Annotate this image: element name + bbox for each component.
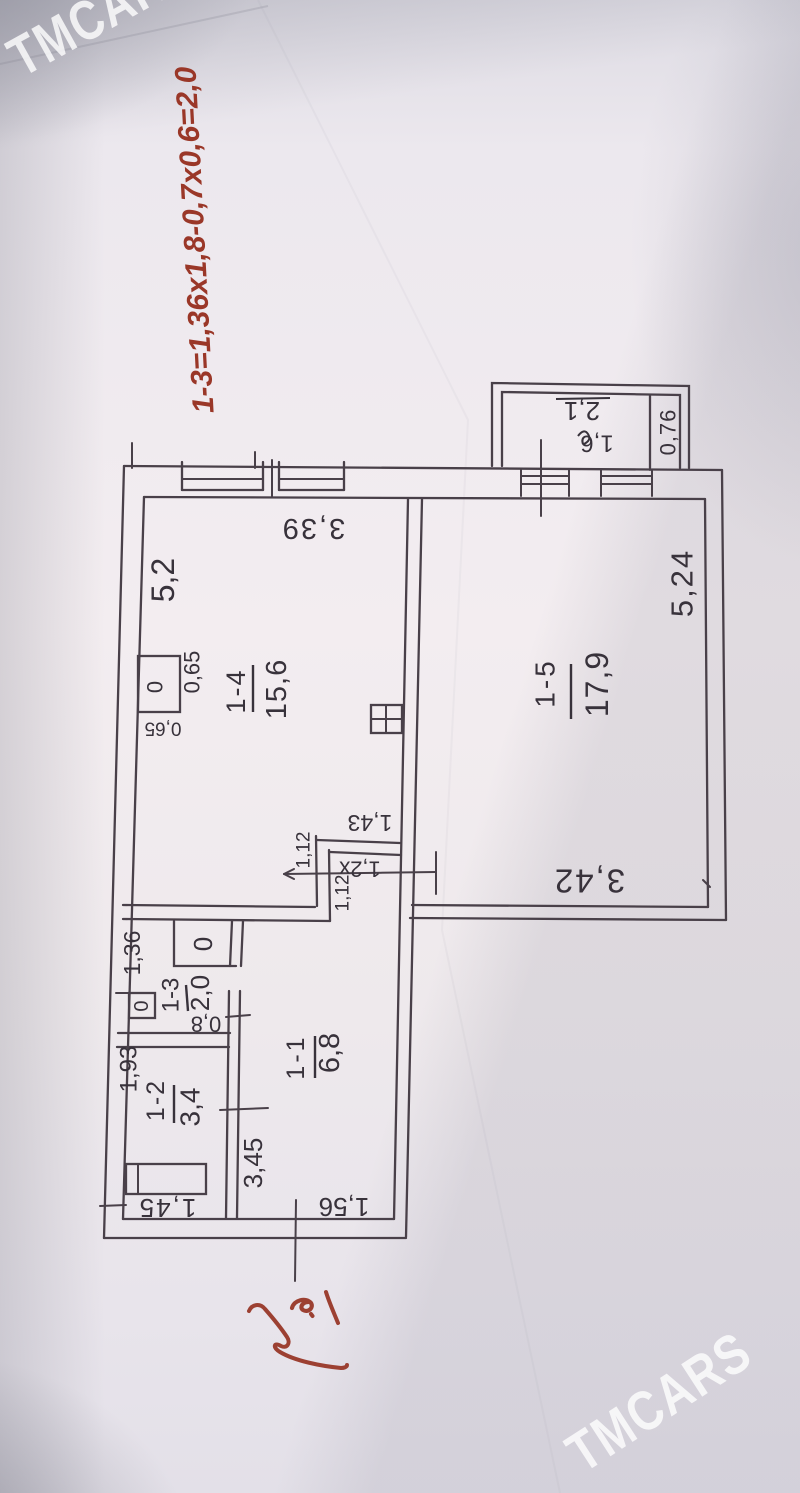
svg-text:6,8: 6,8	[314, 1033, 346, 1073]
svg-text:2,1: 2,1	[564, 396, 600, 426]
svg-text:0,76: 0,76	[656, 409, 681, 456]
svg-text:5,2: 5,2	[145, 558, 181, 602]
svg-text:0,65: 0,65	[180, 651, 205, 694]
svg-text:1,43: 1,43	[348, 810, 393, 836]
svg-text:1,12: 1,12	[333, 875, 354, 912]
svg-text:0: 0	[143, 681, 168, 693]
svg-text:3,45: 3,45	[238, 1138, 268, 1189]
svg-text:3,4: 3,4	[175, 1088, 206, 1127]
svg-text:1,45: 1,45	[138, 1193, 197, 1223]
svg-text:TMCARS: TMCARS	[556, 1320, 763, 1485]
svg-text:0: 0	[131, 1000, 153, 1011]
svg-text:1-4: 1-4	[221, 668, 251, 713]
svg-text:1-5: 1-5	[530, 658, 561, 707]
svg-text:1-3: 1-3	[158, 978, 185, 1013]
svg-text:2,0: 2,0	[185, 975, 215, 1011]
svg-text:15,6: 15,6	[261, 659, 293, 719]
svg-text:1-2: 1-2	[142, 1079, 170, 1121]
svg-text:5,24: 5,24	[665, 549, 700, 617]
svg-text:1,12: 1,12	[294, 832, 315, 869]
svg-text:17,9: 17,9	[579, 651, 615, 717]
svg-text:1,36: 1,36	[119, 931, 145, 976]
svg-text:0,8: 0,8	[191, 1012, 222, 1037]
svg-text:1,93: 1,93	[116, 1046, 143, 1093]
svg-text:1,56: 1,56	[319, 1192, 370, 1222]
svg-text:0: 0	[188, 937, 218, 951]
svg-text:1-3=1,36x1,8-0,7x0,6=2,0: 1-3=1,36x1,8-0,7x0,6=2,0	[169, 66, 220, 415]
svg-text:3,42: 3,42	[553, 863, 625, 900]
svg-text:3,39: 3,39	[281, 512, 345, 544]
svg-text:0,65: 0,65	[145, 718, 182, 739]
svg-text:1-1: 1-1	[282, 1034, 310, 1079]
